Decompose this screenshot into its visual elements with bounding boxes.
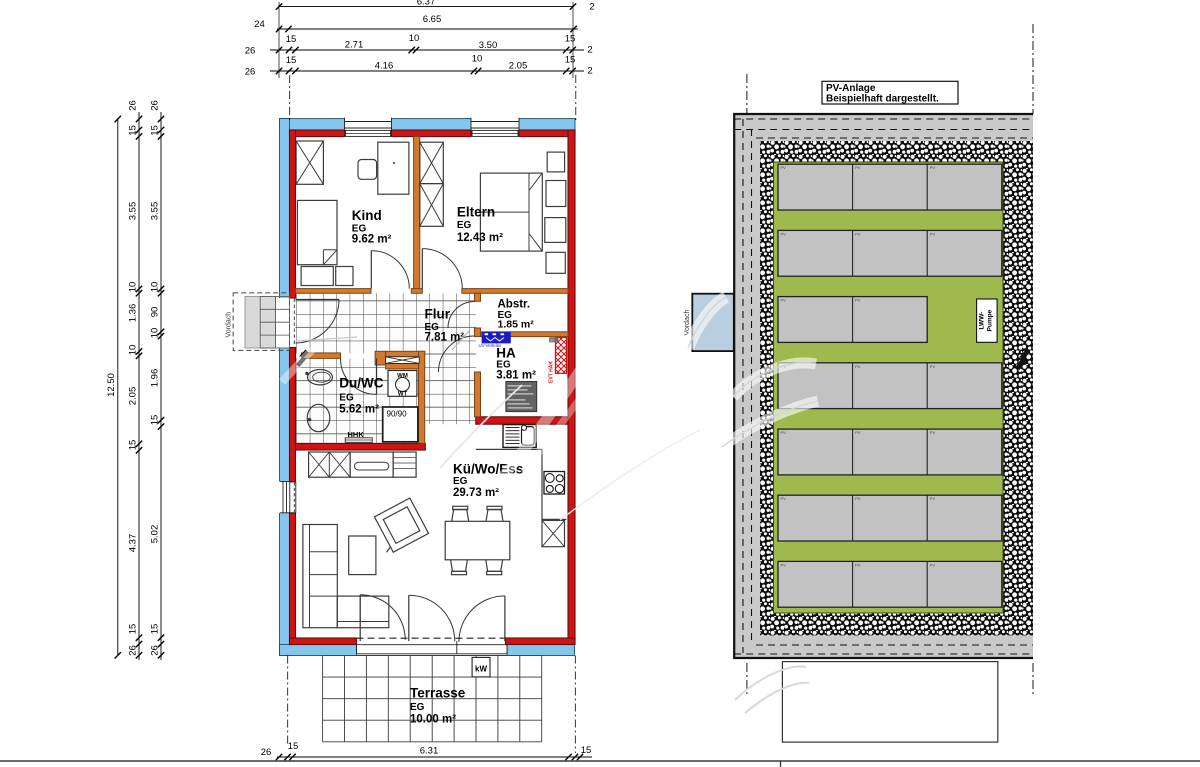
svg-text:9.62 m²: 9.62 m² — [352, 234, 392, 246]
svg-text:1.36: 1.36 — [128, 304, 139, 323]
svg-text:15: 15 — [286, 55, 297, 66]
svg-text:EVT HAK: EVT HAK — [549, 361, 555, 383]
svg-text:Vordach: Vordach — [226, 312, 233, 338]
svg-text:EG: EG — [410, 702, 425, 713]
svg-text:15: 15 — [150, 415, 161, 426]
svg-text:6.65: 6.65 — [423, 14, 442, 25]
svg-text:15: 15 — [565, 34, 576, 45]
svg-text:PV: PV — [781, 298, 787, 303]
svg-text:PV: PV — [930, 364, 936, 369]
svg-text:10: 10 — [150, 282, 161, 293]
svg-text:12.50: 12.50 — [106, 373, 117, 397]
svg-text:PV: PV — [930, 165, 936, 170]
svg-text:PV: PV — [930, 430, 936, 435]
svg-text:PV: PV — [855, 364, 861, 369]
svg-text:UV-Verteiler: UV-Verteiler — [479, 343, 502, 348]
svg-text:1.96: 1.96 — [150, 369, 161, 388]
svg-text:26: 26 — [245, 67, 256, 78]
svg-text:2.05: 2.05 — [128, 387, 139, 406]
svg-text:PV: PV — [781, 165, 787, 170]
svg-text:2.71: 2.71 — [345, 40, 364, 51]
svg-text:4.16: 4.16 — [375, 61, 394, 72]
svg-text:Pumpe: Pumpe — [987, 309, 994, 331]
svg-text:PV: PV — [855, 430, 861, 435]
svg-text:WT: WT — [398, 392, 408, 398]
svg-text:15: 15 — [128, 624, 139, 635]
svg-text:2: 2 — [589, 2, 594, 13]
svg-text:26: 26 — [128, 645, 139, 656]
svg-text:29.73 m²: 29.73 m² — [453, 487, 499, 499]
svg-text:PV: PV — [781, 562, 787, 567]
svg-text:2: 2 — [587, 45, 592, 56]
svg-text:Terrasse: Terrasse — [410, 686, 466, 701]
svg-text:15: 15 — [150, 624, 161, 635]
svg-text:Flur: Flur — [425, 306, 451, 321]
svg-text:WM: WM — [397, 374, 408, 380]
svg-text:PV: PV — [930, 231, 936, 236]
svg-text:PV: PV — [781, 496, 787, 501]
svg-text:20: 20 — [550, 338, 555, 343]
svg-text:3.55: 3.55 — [150, 202, 161, 221]
svg-text:10: 10 — [128, 282, 139, 293]
svg-text:15: 15 — [581, 745, 592, 756]
svg-text:10: 10 — [409, 33, 420, 44]
svg-text:PV: PV — [930, 562, 936, 567]
svg-text:26: 26 — [150, 645, 161, 656]
svg-text:EG: EG — [457, 220, 472, 231]
svg-text:3.50: 3.50 — [479, 40, 498, 51]
svg-text:5.62 m²: 5.62 m² — [339, 404, 379, 416]
svg-text:Beispielhaft dargestellt.: Beispielhaft dargestellt. — [826, 94, 939, 105]
svg-text:PV: PV — [855, 165, 861, 170]
svg-text:24: 24 — [254, 19, 265, 30]
svg-text:12.43 m²: 12.43 m² — [457, 232, 503, 244]
svg-text:15: 15 — [286, 34, 297, 45]
svg-text:90: 90 — [150, 307, 161, 318]
svg-text:4.37: 4.37 — [128, 534, 139, 553]
svg-text:26: 26 — [150, 100, 161, 111]
svg-text:PV: PV — [855, 298, 861, 303]
svg-text:26: 26 — [261, 747, 272, 758]
svg-text:26: 26 — [128, 100, 139, 111]
svg-text:PV: PV — [855, 231, 861, 236]
svg-text:7.81 m²: 7.81 m² — [425, 332, 465, 344]
svg-text:5.02: 5.02 — [150, 525, 161, 544]
svg-text:Eltern: Eltern — [457, 205, 495, 220]
svg-text:kW: kW — [475, 665, 487, 674]
svg-text:EG: EG — [339, 393, 354, 404]
svg-text:6.37: 6.37 — [417, 0, 436, 8]
svg-text:EG: EG — [453, 476, 468, 487]
svg-text:26: 26 — [245, 46, 256, 57]
svg-text:15: 15 — [288, 741, 299, 752]
svg-text:2.05: 2.05 — [509, 61, 528, 72]
svg-text:3.81 m²: 3.81 m² — [496, 370, 536, 382]
svg-text:PV-Anlage: PV-Anlage — [826, 83, 876, 94]
svg-text:2: 2 — [587, 66, 592, 77]
svg-text:3.55: 3.55 — [128, 202, 139, 221]
svg-text:15: 15 — [565, 55, 576, 66]
svg-text:15: 15 — [150, 125, 161, 136]
svg-text:10: 10 — [150, 328, 161, 339]
svg-text:10: 10 — [472, 54, 483, 65]
svg-text:90/90: 90/90 — [387, 410, 408, 419]
svg-text:PV: PV — [781, 430, 787, 435]
svg-text:PV: PV — [855, 562, 861, 567]
svg-text:PV: PV — [930, 496, 936, 501]
svg-text:6.31: 6.31 — [420, 746, 439, 757]
svg-text:15: 15 — [128, 125, 139, 136]
svg-text:10: 10 — [128, 345, 139, 356]
svg-text:PV: PV — [781, 231, 787, 236]
svg-text:15: 15 — [128, 440, 139, 451]
svg-text:1.85 m²: 1.85 m² — [498, 319, 535, 331]
svg-text:Du/WC: Du/WC — [339, 376, 383, 391]
svg-text:Kind: Kind — [352, 208, 382, 223]
svg-text:LWW-: LWW- — [979, 312, 986, 330]
svg-text:10.00 m²: 10.00 m² — [410, 714, 456, 726]
svg-text:Abstr.: Abstr. — [498, 299, 531, 311]
svg-text:PV: PV — [855, 496, 861, 501]
